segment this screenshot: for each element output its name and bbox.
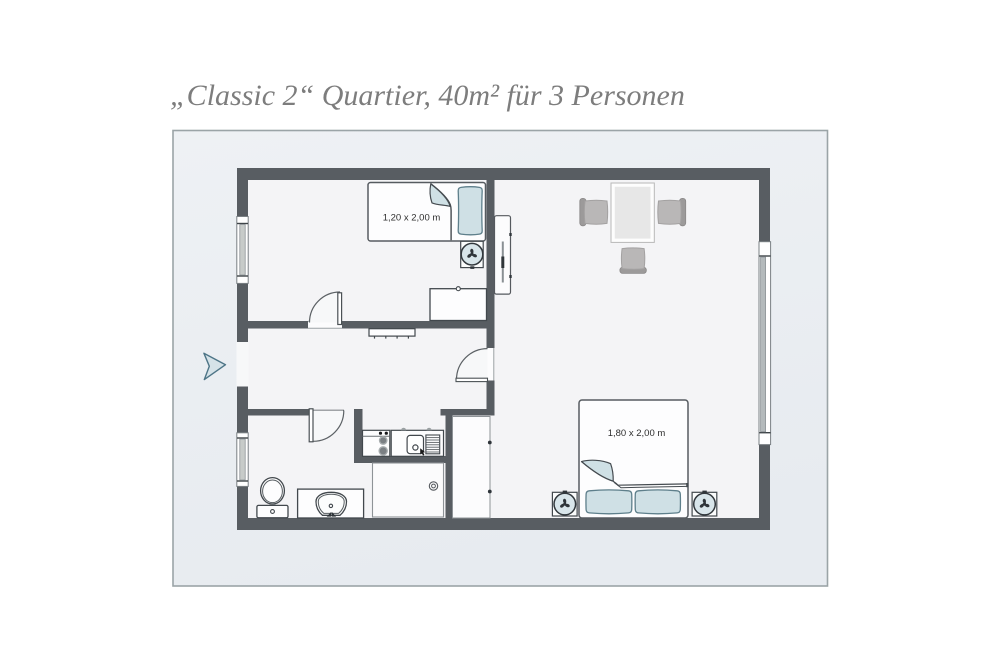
svg-text:1,80 x 2,00 m: 1,80 x 2,00 m xyxy=(608,428,666,439)
svg-text:„Classic 2“ Quartier, 40m² für: „Classic 2“ Quartier, 40m² für 3 Persone… xyxy=(170,79,685,112)
svg-text:1,20 x 2,00 m: 1,20 x 2,00 m xyxy=(383,213,441,224)
